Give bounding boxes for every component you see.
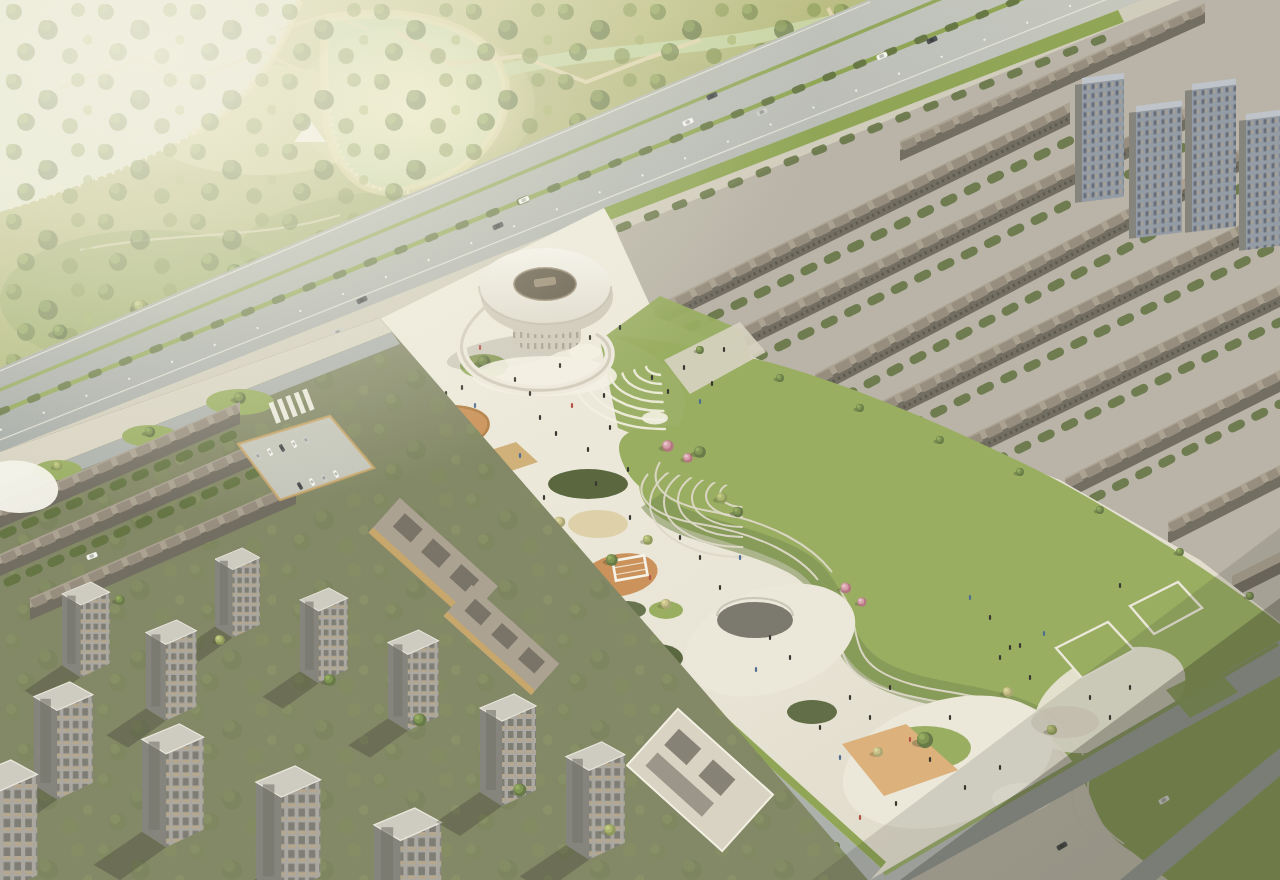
masterplan-rendering-canvas xyxy=(0,0,1280,880)
aerial-rendering xyxy=(0,0,1280,880)
warm-cast xyxy=(0,0,1280,880)
atmosphere xyxy=(0,0,1280,880)
